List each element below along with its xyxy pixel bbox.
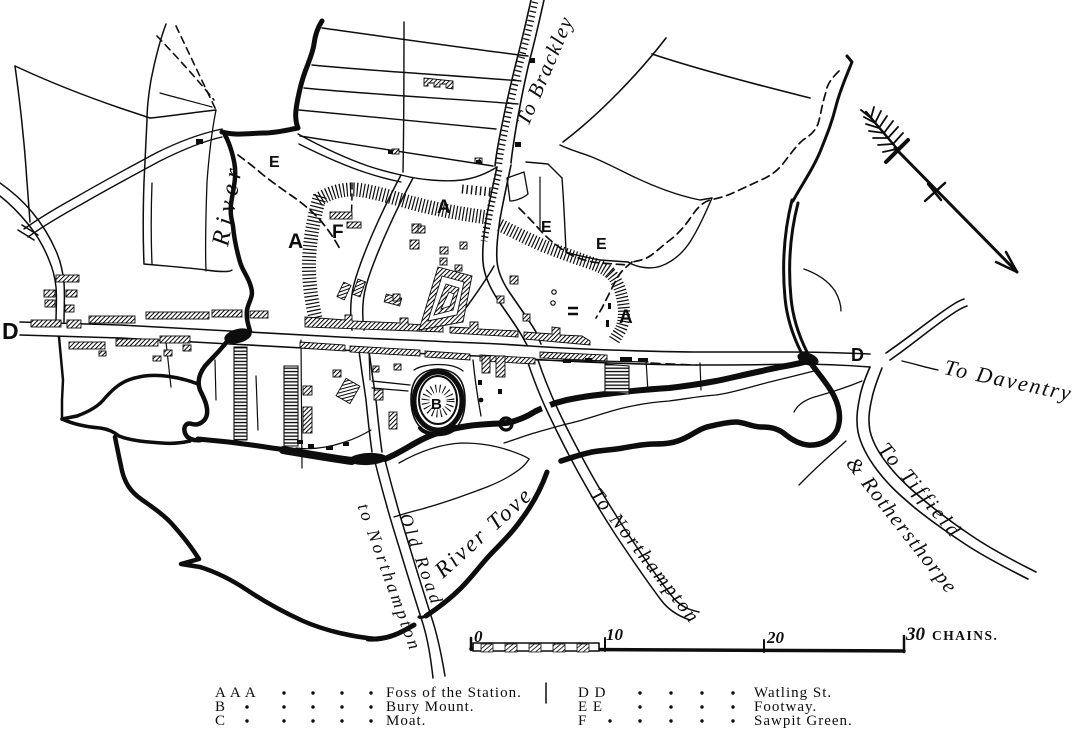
svg-text:Sawpit Green.: Sawpit Green. [754,713,853,729]
svg-text:C: C [215,713,226,729]
svg-text:D: D [851,345,864,365]
svg-text:F: F [578,713,587,729]
svg-text:A: A [437,197,451,218]
svg-text:B: B [431,396,442,413]
svg-text:CHAINS.: CHAINS. [932,628,998,643]
svg-text:E: E [596,236,607,253]
svg-text:20: 20 [766,628,785,647]
svg-text:Moat.: Moat. [386,713,426,729]
svg-text:F: F [332,222,344,243]
svg-text:10: 10 [606,625,624,644]
svg-text:30: 30 [905,624,926,645]
svg-text:0: 0 [474,627,483,646]
svg-text:E: E [269,154,280,171]
svg-text:E: E [541,219,552,236]
svg-text:D: D [2,318,19,344]
svg-text:A: A [619,307,633,328]
svg-text:A: A [288,230,303,253]
